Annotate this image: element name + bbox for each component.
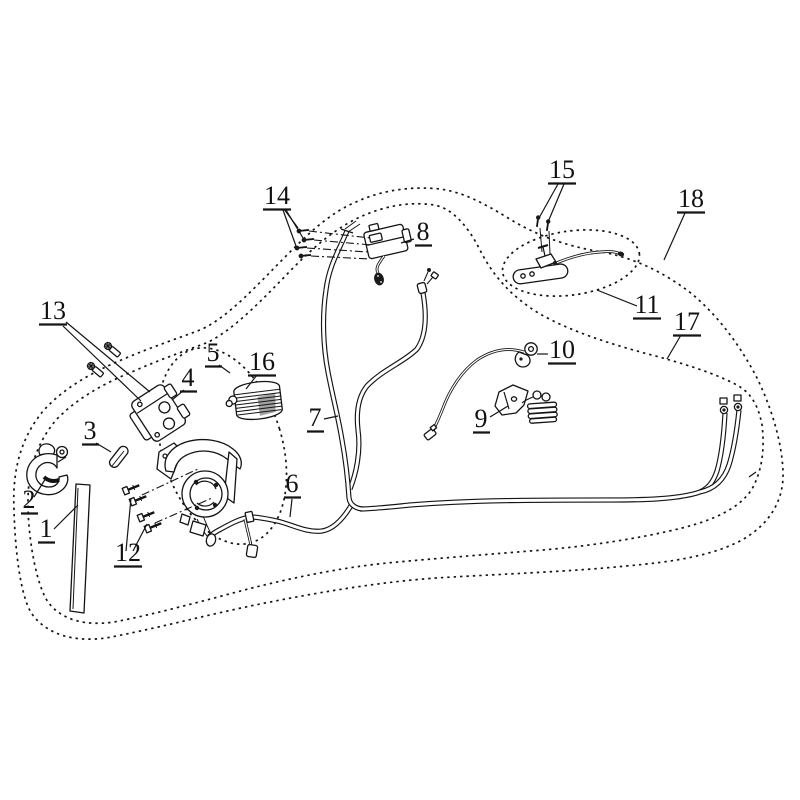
callout-18-label: 18 — [678, 184, 704, 213]
callout-8-label: 8 — [417, 217, 430, 246]
diagram-page: 1 2 3 4 5 6 7 8 9 10 — [0, 0, 800, 800]
callout-2-label: 2 — [23, 485, 36, 514]
callout-7-label: 7 — [309, 403, 322, 432]
callout-13-label: 13 — [40, 296, 66, 325]
callout-16-label: 16 — [249, 347, 275, 376]
callout-14-label: 14 — [264, 181, 290, 210]
paper-background — [0, 0, 800, 800]
callout-5-label: 5 — [207, 338, 220, 367]
callout-3-label: 3 — [84, 416, 97, 445]
callout-15-label: 15 — [549, 155, 575, 184]
callout-9-label: 9 — [475, 404, 488, 433]
callout-11-label: 11 — [634, 290, 659, 319]
callout-4-label: 4 — [182, 363, 195, 392]
callout-17-label: 17 — [674, 307, 700, 336]
diagram-canvas: 1 2 3 4 5 6 7 8 9 10 — [0, 0, 800, 800]
callout-10-label: 10 — [549, 335, 575, 364]
callout-1-label: 1 — [40, 514, 53, 543]
callout-6-label: 6 — [286, 469, 299, 498]
callout-13: 13 — [39, 296, 67, 325]
callout-12-label: 12 — [115, 538, 141, 567]
